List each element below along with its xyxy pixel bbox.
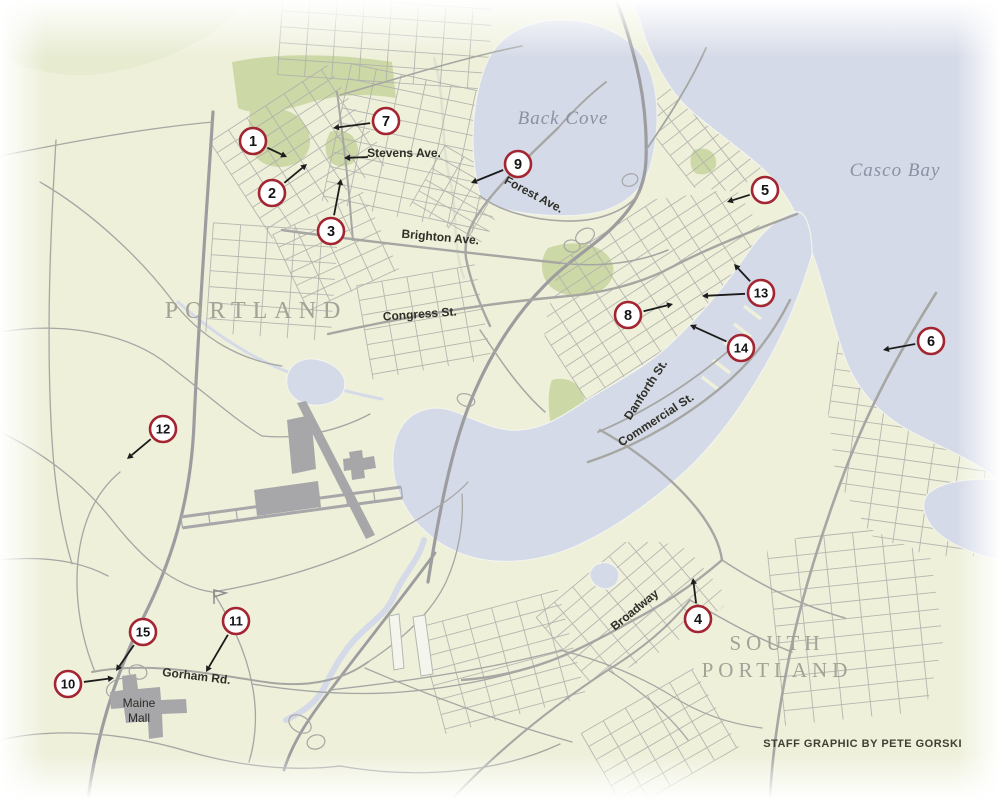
vignette-bottom	[0, 754, 1000, 799]
marker-number-2: 2	[268, 186, 276, 202]
marker-number-12: 12	[156, 422, 170, 437]
marker-number-6: 6	[927, 334, 935, 350]
pointer-arrow	[350, 157, 368, 158]
marker-number-9: 9	[514, 157, 522, 173]
marker-number-15: 15	[136, 625, 150, 640]
marker-number-7: 7	[382, 114, 390, 130]
water-label-back-cove: Back Cove	[518, 108, 609, 129]
marker-number-14: 14	[734, 341, 749, 356]
street-label-stevens-ave: Stevens Ave.	[367, 146, 441, 160]
city-label-portland: PORTLAND	[165, 298, 348, 324]
vignette-left	[0, 0, 46, 799]
marker-number-4: 4	[694, 612, 702, 628]
poi-label-mall: Mall	[128, 711, 150, 725]
marker-number-11: 11	[229, 614, 243, 629]
city-label-south: SOUTH	[729, 631, 824, 655]
marker-number-13: 13	[754, 286, 768, 301]
marker-number-10: 10	[61, 677, 75, 692]
portland-map-canvas: PORTLANDSOUTHPORTLANDBack CoveCasco BayM…	[0, 0, 1000, 799]
marker-number-3: 3	[327, 224, 335, 240]
vignette-right	[956, 0, 1000, 799]
city-label-portland: PORTLAND	[702, 658, 853, 682]
water-label-casco-bay: Casco Bay	[850, 160, 941, 181]
marker-number-1: 1	[249, 134, 257, 150]
vignette-top	[0, 0, 1000, 58]
staff-credit: STAFF GRAPHIC BY PETE GORSKI	[763, 738, 962, 750]
poi-label-maine: Maine	[123, 696, 156, 710]
marker-number-5: 5	[761, 183, 769, 199]
marker-number-8: 8	[624, 308, 632, 324]
map-graphic: PORTLANDSOUTHPORTLANDBack CoveCasco BayM…	[0, 0, 1000, 799]
airport-apron-north	[287, 415, 316, 474]
